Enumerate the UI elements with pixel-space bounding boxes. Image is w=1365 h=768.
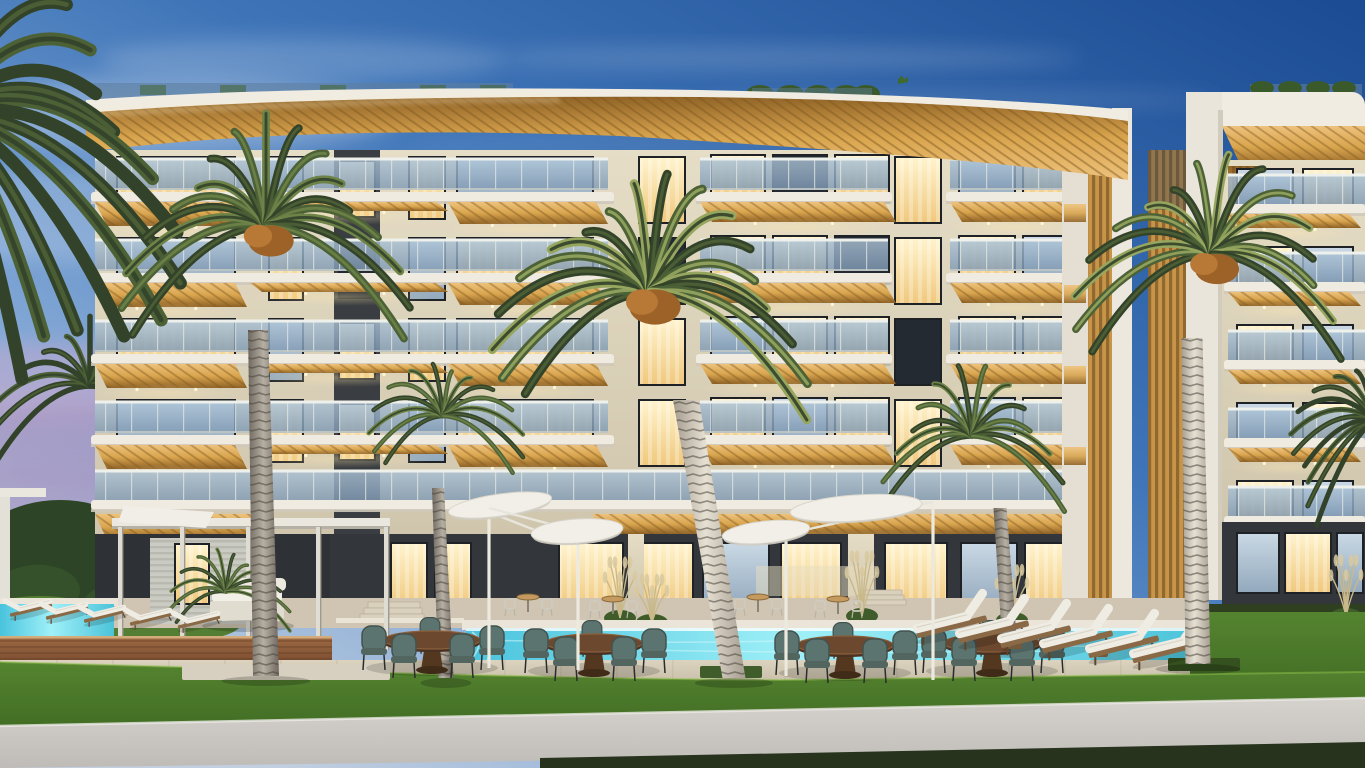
downlight <box>194 307 197 310</box>
bistro-table <box>747 594 769 600</box>
railing-post <box>287 472 288 502</box>
table-base <box>976 669 1008 677</box>
railing-post <box>1316 176 1317 206</box>
railing-post <box>992 472 993 502</box>
rendering-viewport <box>0 0 1365 768</box>
pampas-plume <box>870 550 875 562</box>
railing-post <box>469 322 470 352</box>
downlight <box>553 305 556 308</box>
downlight <box>1041 222 1044 225</box>
bistro-table <box>827 596 849 602</box>
railing-post <box>1342 176 1343 206</box>
handrail <box>592 470 1088 473</box>
balcony-slab <box>696 435 892 445</box>
railing-post <box>313 403 314 433</box>
handrail <box>1228 486 1365 489</box>
downlight <box>754 222 757 225</box>
railing-post <box>313 160 314 190</box>
slab-shadow <box>91 509 1092 512</box>
soffit-glow <box>950 218 1078 236</box>
railing-post <box>960 322 961 352</box>
chair-seat <box>553 659 579 666</box>
pampas-plume <box>633 571 638 583</box>
pampas-plume <box>618 571 623 583</box>
railing-post <box>599 160 600 190</box>
soffit-glow <box>950 299 1078 317</box>
railing-post <box>1264 176 1265 206</box>
railing-post <box>1038 241 1039 271</box>
handrail <box>95 401 608 404</box>
railing-post <box>960 160 961 190</box>
cabana-post-shade <box>388 527 389 650</box>
railing-post <box>762 241 763 271</box>
pampas-plume <box>608 556 613 568</box>
pampas-plume <box>660 574 665 586</box>
railing-post <box>339 403 340 433</box>
railing-post <box>680 472 681 502</box>
railing-post <box>840 403 841 433</box>
downlight <box>831 303 834 306</box>
railing-base <box>95 188 608 190</box>
cabana-post-shade <box>320 527 321 650</box>
railing-post <box>105 403 106 433</box>
railing-post <box>732 472 733 502</box>
railing-post <box>183 472 184 502</box>
railing-post <box>313 322 314 352</box>
downlight <box>1263 384 1266 387</box>
pampas-plume <box>1015 564 1020 576</box>
railing-post <box>814 160 815 190</box>
downlight <box>491 224 494 227</box>
pampas-plume <box>655 574 660 586</box>
handrail <box>95 470 592 473</box>
chair-seat <box>449 656 475 663</box>
railing-base <box>700 188 888 190</box>
balcony-slab <box>91 354 614 364</box>
railing-post <box>443 241 444 271</box>
railing-post <box>986 322 987 352</box>
downlight <box>987 222 990 225</box>
pampas-plume <box>1354 554 1359 566</box>
downlight <box>135 307 138 310</box>
steps-left <box>364 608 422 614</box>
railing-post <box>105 241 106 271</box>
railing-post <box>287 322 288 352</box>
downlight <box>553 224 556 227</box>
railing-post <box>365 322 366 352</box>
railing-post <box>339 322 340 352</box>
railing-post <box>417 322 418 352</box>
soffit-glow <box>950 380 1078 398</box>
railing-post <box>1012 241 1013 271</box>
ground-glass <box>1238 534 1278 592</box>
downlight <box>382 292 385 295</box>
railing-post <box>736 160 737 190</box>
railing-post <box>1290 176 1291 206</box>
railing-post <box>960 241 961 271</box>
pampas-plume <box>665 585 670 597</box>
window <box>896 320 940 384</box>
downlight <box>1263 228 1266 231</box>
downlight <box>1041 465 1044 468</box>
railing-post <box>183 322 184 352</box>
railing-post <box>365 472 366 502</box>
pampas-plume <box>628 556 633 568</box>
table-base <box>416 666 448 674</box>
curtain <box>896 158 940 222</box>
downlight <box>491 305 494 308</box>
railing-post <box>547 403 548 433</box>
palm-shadow <box>695 678 773 688</box>
railing-post <box>788 160 789 190</box>
railing-post <box>417 472 418 502</box>
bistro-table <box>602 596 624 602</box>
soffit-glow <box>448 220 596 238</box>
railing-post <box>573 472 574 502</box>
railing-post <box>235 472 236 502</box>
deck-light-strip <box>0 636 332 639</box>
railing-post <box>788 403 789 433</box>
railing-post <box>1238 410 1239 440</box>
railing-post <box>391 160 392 190</box>
handrail <box>1228 330 1365 333</box>
downlight <box>987 465 990 468</box>
downlight <box>1263 462 1266 465</box>
glass-railing <box>95 403 608 433</box>
railing-post <box>710 160 711 190</box>
railing-post <box>131 403 132 433</box>
railing-post <box>157 322 158 352</box>
railing-post <box>313 472 314 502</box>
railing-post <box>235 322 236 352</box>
pampas-plume <box>603 571 608 583</box>
bistro-table <box>517 594 539 600</box>
chair-seat <box>1009 659 1035 666</box>
chair-seat <box>892 653 918 660</box>
table-base <box>578 669 610 677</box>
downlight <box>831 384 834 387</box>
pampas-plume <box>650 585 655 597</box>
downlight <box>831 222 834 225</box>
downlight <box>831 465 834 468</box>
railing-post <box>599 403 600 433</box>
downlight <box>135 388 138 391</box>
steps-left <box>368 602 420 608</box>
railing-post <box>940 472 941 502</box>
pampas-plume <box>640 574 645 586</box>
downlight <box>754 465 757 468</box>
railing-post <box>469 472 470 502</box>
glass-railing <box>95 160 608 190</box>
railing-post <box>840 160 841 190</box>
railing-post <box>784 472 785 502</box>
railing-post <box>521 403 522 433</box>
railing-post <box>469 241 470 271</box>
downlight <box>1314 384 1317 387</box>
downlight <box>1314 306 1317 309</box>
glass-railing <box>1228 332 1365 362</box>
downlight <box>1041 303 1044 306</box>
pampas-plume <box>645 574 650 586</box>
cloud <box>480 47 1080 69</box>
railing-base <box>95 350 608 352</box>
downlight <box>304 454 307 457</box>
downlight <box>754 384 757 387</box>
chair-seat <box>479 648 505 655</box>
railing-post <box>1290 488 1291 518</box>
railing-post <box>235 241 236 271</box>
railing-post <box>1038 322 1039 352</box>
railing-post <box>547 160 548 190</box>
railing-post <box>710 322 711 352</box>
corner-louver-lines <box>1088 150 1112 598</box>
chair-seat <box>951 659 977 666</box>
railing-post <box>866 241 867 271</box>
downlight <box>194 388 197 391</box>
pampas-plume <box>1339 554 1344 566</box>
corner-soffit-stub <box>1064 204 1086 222</box>
railing-post <box>1342 254 1343 284</box>
corner-white-frame <box>1112 108 1132 602</box>
railing-post <box>105 472 106 502</box>
railing-post <box>521 241 522 271</box>
railing-post <box>840 322 841 352</box>
chair-seat <box>641 651 667 658</box>
railing-post <box>814 322 815 352</box>
railing-post <box>810 472 811 502</box>
railing-post <box>105 322 106 352</box>
railing-post <box>391 472 392 502</box>
railing-post <box>788 241 789 271</box>
railing-post <box>866 403 867 433</box>
railing-post <box>840 241 841 271</box>
railing-post <box>986 241 987 271</box>
curtain <box>1286 534 1330 592</box>
scene-svg <box>0 0 1365 768</box>
railing-post <box>866 160 867 190</box>
handrail <box>95 239 608 242</box>
balcony-slab <box>696 192 892 202</box>
cloud <box>100 38 500 82</box>
railing-post <box>209 472 210 502</box>
downlight <box>987 303 990 306</box>
downlight <box>382 373 385 376</box>
palm-shadow <box>1156 664 1241 674</box>
palm-dates <box>244 225 272 248</box>
pampas-plume <box>1329 569 1334 581</box>
railing-post <box>602 472 603 502</box>
curtain <box>896 401 940 465</box>
downlight <box>382 211 385 214</box>
chair-seat <box>804 661 830 668</box>
railing-post <box>443 160 444 190</box>
railing-post <box>986 160 987 190</box>
chair-seat <box>611 659 637 666</box>
downlight <box>1314 228 1317 231</box>
cabana-post-shade <box>122 527 123 650</box>
railing-post <box>1018 472 1019 502</box>
railing-post <box>183 160 184 190</box>
handrail <box>95 158 608 161</box>
chair-seat <box>361 648 387 655</box>
railing-post <box>495 241 496 271</box>
palm-dates <box>626 289 658 315</box>
railing-base <box>700 431 888 433</box>
railing-post <box>365 403 366 433</box>
curtain <box>896 239 940 303</box>
railing-post <box>131 472 132 502</box>
downlight <box>1041 384 1044 387</box>
railing-post <box>417 160 418 190</box>
handrail <box>700 158 888 161</box>
pampas-plume <box>865 551 870 563</box>
railing-base <box>95 431 608 433</box>
palm-shadow <box>222 676 310 686</box>
soffit-glow <box>250 450 436 468</box>
louver-screen-shade <box>1148 150 1186 210</box>
pampas-plume <box>855 550 860 562</box>
railing-post <box>1342 488 1343 518</box>
railing-post <box>814 241 815 271</box>
railing-post <box>1238 332 1239 362</box>
pampas-plume <box>613 556 618 568</box>
railing-post <box>866 322 867 352</box>
railing-post <box>1012 322 1013 352</box>
wood-deck-planks <box>0 636 332 662</box>
pergola-edge-beam <box>0 488 46 497</box>
railing-base <box>700 350 888 352</box>
chair-seat <box>862 661 888 668</box>
pampas-plume <box>875 566 880 578</box>
pampas-plume <box>850 551 855 563</box>
handrail <box>95 320 608 323</box>
railing-post <box>443 322 444 352</box>
pampas-plume <box>1025 577 1030 589</box>
railing-post <box>521 160 522 190</box>
railing-post <box>1038 403 1039 433</box>
railing-post <box>758 472 759 502</box>
corner-soffit-stub <box>1064 447 1086 465</box>
railing-post <box>1264 410 1265 440</box>
railing-post <box>417 241 418 271</box>
railing-post <box>1264 488 1265 518</box>
railing-post <box>209 322 210 352</box>
railing-post <box>762 403 763 433</box>
railing-post <box>157 403 158 433</box>
pampas-plume <box>623 557 628 569</box>
pampas-plume <box>845 567 850 579</box>
railing-post <box>1264 332 1265 362</box>
railing-post <box>736 403 737 433</box>
railing-post <box>1290 332 1291 362</box>
palm-dates <box>1190 253 1218 275</box>
downlight <box>553 386 556 389</box>
railing-post <box>573 403 574 433</box>
pampas-plume <box>1020 564 1025 576</box>
railing-post <box>209 403 210 433</box>
railing-post <box>573 160 574 190</box>
railing-post <box>814 403 815 433</box>
railing-post <box>654 472 655 502</box>
palm-shadow <box>421 678 472 688</box>
downlight <box>304 373 307 376</box>
railing-post <box>313 241 314 271</box>
pampas-plume <box>1359 569 1364 581</box>
railing-post <box>365 160 366 190</box>
railing-post <box>339 472 340 502</box>
railing-post <box>1238 488 1239 518</box>
downlight <box>1263 306 1266 309</box>
pampas-plume <box>1349 555 1354 567</box>
railing-post <box>1316 332 1317 362</box>
downlight <box>382 454 385 457</box>
glass-railing <box>700 160 888 190</box>
roof-plant-tint <box>140 85 166 95</box>
pampas-plume <box>860 566 865 578</box>
railing-post <box>628 472 629 502</box>
railing-post <box>235 403 236 433</box>
downlight <box>987 384 990 387</box>
railing-post <box>762 160 763 190</box>
corner-soffit-stub <box>1064 366 1086 384</box>
railing-post <box>157 472 158 502</box>
pampas-plume <box>1344 569 1349 581</box>
railing-post <box>183 403 184 433</box>
railing-post <box>710 403 711 433</box>
railing-post <box>966 472 967 502</box>
chair-seat <box>523 651 549 658</box>
pampas-plume <box>1334 554 1339 566</box>
downlight <box>304 292 307 295</box>
table-base <box>829 671 861 679</box>
railing-post <box>599 322 600 352</box>
glass-railing <box>1228 488 1365 518</box>
chair-seat <box>391 656 417 663</box>
railing-post <box>495 160 496 190</box>
balcony-slab <box>91 500 1092 510</box>
railing-post <box>469 160 470 190</box>
curtain <box>640 320 684 384</box>
soffit-glow <box>700 218 884 236</box>
pampas-plume <box>635 585 640 597</box>
balcony-slab <box>91 435 614 445</box>
balcony-slab <box>91 192 614 202</box>
railing-post <box>287 403 288 433</box>
